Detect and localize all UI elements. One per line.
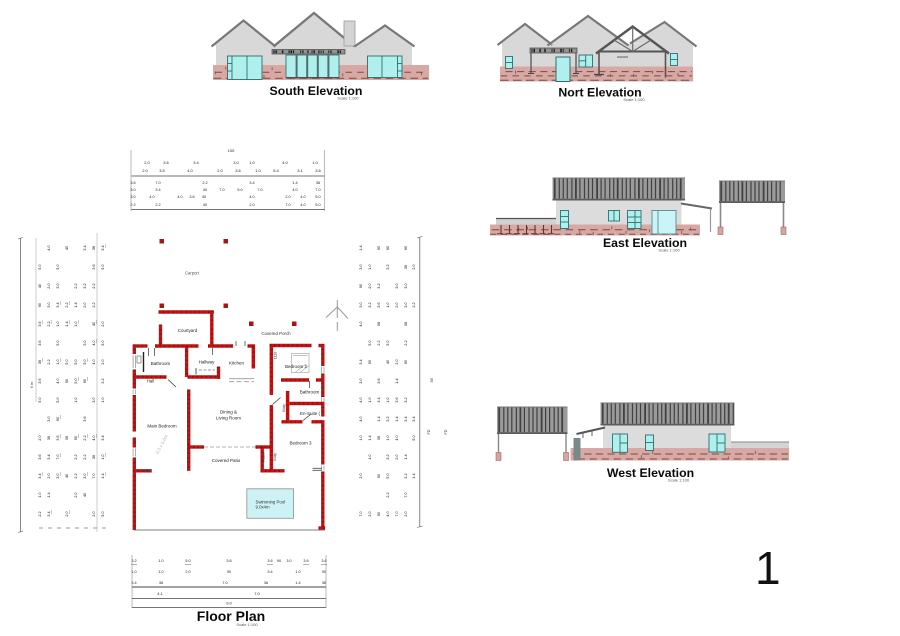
svg-text:2.0: 2.0 — [65, 511, 69, 516]
svg-text:1.4: 1.4 — [47, 492, 51, 497]
svg-text:3.4: 3.4 — [101, 245, 105, 250]
svg-text:2.0: 2.0 — [368, 283, 372, 288]
svg-text:3.2: 3.2 — [386, 264, 390, 269]
svg-text:5.4: 5.4 — [273, 168, 279, 173]
svg-text:3.6: 3.6 — [38, 321, 42, 326]
svg-text:Scale 1:100: Scale 1:100 — [623, 97, 645, 102]
svg-text:4.0: 4.0 — [187, 168, 193, 173]
svg-text:4.0: 4.0 — [292, 188, 297, 192]
svg-text:4.0: 4.0 — [249, 195, 254, 199]
svg-text:3.5: 3.5 — [159, 168, 165, 173]
svg-text:5.0: 5.0 — [65, 359, 69, 364]
svg-text:1.0: 1.0 — [368, 397, 372, 402]
svg-text:7.0: 7.0 — [404, 492, 408, 497]
svg-text:1.4: 1.4 — [395, 416, 399, 421]
svg-text:5.0: 5.0 — [38, 264, 42, 269]
svg-text:Covered Porch: Covered Porch — [261, 331, 291, 336]
svg-text:40: 40 — [92, 322, 96, 326]
svg-text:5.0: 5.0 — [56, 264, 60, 269]
svg-text:2.2: 2.2 — [202, 181, 207, 185]
svg-text:3.6: 3.6 — [38, 340, 42, 345]
svg-text:40: 40 — [203, 203, 207, 207]
svg-text:1.0: 1.0 — [56, 359, 60, 364]
svg-text:1.0: 1.0 — [295, 570, 300, 574]
svg-text:2.0: 2.0 — [217, 168, 223, 173]
svg-text:1.0: 1.0 — [368, 264, 372, 269]
svg-text:4.1: 4.1 — [157, 591, 163, 596]
svg-text:4.0: 4.0 — [56, 378, 60, 383]
svg-text:4.0: 4.0 — [92, 340, 96, 345]
svg-text:9.0x4m: 9.0x4m — [256, 505, 271, 510]
svg-text:1.4: 1.4 — [412, 473, 416, 478]
svg-text:2.0: 2.0 — [395, 302, 399, 307]
svg-text:2.0: 2.0 — [285, 195, 290, 199]
svg-text:1.0: 1.0 — [386, 397, 390, 402]
svg-text:2.2: 2.2 — [130, 203, 135, 207]
svg-text:3.0: 3.0 — [404, 283, 408, 288]
svg-text:2.2: 2.2 — [65, 302, 69, 307]
svg-text:3.4: 3.4 — [155, 188, 160, 192]
svg-text:3.0: 3.0 — [47, 302, 51, 307]
svg-text:1.0: 1.0 — [101, 454, 105, 459]
svg-text:90: 90 — [359, 284, 363, 288]
svg-text:2.2: 2.2 — [92, 283, 96, 288]
svg-text:36: 36 — [92, 455, 96, 459]
svg-text:3.4: 3.4 — [267, 570, 272, 574]
svg-text:3.4: 3.4 — [359, 359, 363, 364]
svg-text:9 m: 9 m — [29, 381, 34, 388]
svg-text:3.0: 3.0 — [130, 188, 135, 192]
svg-text:3.6: 3.6 — [377, 378, 381, 383]
svg-text:5.0: 5.0 — [56, 340, 60, 345]
svg-text:1.4: 1.4 — [377, 416, 381, 421]
svg-text:2.2: 2.2 — [74, 283, 78, 288]
svg-text:Bidg: Bidg — [282, 404, 286, 411]
svg-text:Main Bedroom: Main Bedroom — [147, 424, 177, 429]
svg-text:40: 40 — [386, 360, 390, 364]
svg-text:Scale 1:100: Scale 1:100 — [668, 478, 690, 483]
svg-text:1.0: 1.0 — [38, 492, 42, 497]
svg-text:90: 90 — [404, 246, 408, 250]
svg-text:3.6: 3.6 — [226, 559, 231, 563]
svg-text:Courtyard: Courtyard — [178, 328, 198, 333]
svg-text:4.0: 4.0 — [282, 160, 288, 165]
svg-text:7.0: 7.0 — [222, 581, 227, 585]
svg-text:Bathroom: Bathroom — [151, 361, 171, 366]
svg-text:4.0: 4.0 — [359, 416, 363, 421]
svg-text:Hallway: Hallway — [199, 360, 216, 365]
svg-text:2.2: 2.2 — [47, 359, 51, 364]
svg-text:40: 40 — [202, 195, 206, 199]
svg-text:3.0: 3.0 — [395, 283, 399, 288]
svg-text:Scale 1:100: Scale 1:100 — [337, 96, 359, 101]
svg-text:3.1: 3.1 — [297, 168, 303, 173]
svg-text:3.6: 3.6 — [56, 435, 60, 440]
svg-text:3.6: 3.6 — [395, 397, 399, 402]
svg-text:3.0: 3.0 — [233, 160, 239, 165]
svg-text:3.4: 3.4 — [412, 416, 416, 421]
svg-text:4.0: 4.0 — [300, 203, 305, 207]
svg-text:36: 36 — [377, 322, 381, 326]
svg-text:3.6: 3.6 — [38, 378, 42, 383]
svg-text:7.0: 7.0 — [257, 188, 262, 192]
svg-text:3.2: 3.2 — [404, 397, 408, 402]
svg-text:1.4: 1.4 — [292, 181, 297, 185]
svg-text:90: 90 — [377, 474, 381, 478]
svg-text:5.0: 5.0 — [185, 559, 190, 563]
svg-text:5.0: 5.0 — [56, 397, 60, 402]
svg-text:90: 90 — [83, 379, 87, 383]
svg-text:40: 40 — [38, 284, 42, 288]
svg-text:4.0: 4.0 — [359, 321, 363, 326]
svg-text:2.2: 2.2 — [74, 473, 78, 478]
svg-text:1110: 1110 — [273, 352, 277, 359]
svg-text:5.0: 5.0 — [386, 473, 390, 478]
svg-text:2.0: 2.0 — [74, 492, 78, 497]
svg-text:1.4: 1.4 — [65, 321, 69, 326]
svg-text:Hall: Hall — [147, 379, 154, 384]
svg-text:En-Suite (: En-Suite ( — [300, 411, 321, 416]
svg-text:90: 90 — [404, 360, 408, 364]
svg-text:2.2: 2.2 — [74, 454, 78, 459]
svg-text:2.0: 2.0 — [404, 511, 408, 516]
svg-text:1.0: 1.0 — [158, 559, 163, 563]
svg-text:3.4: 3.4 — [83, 245, 87, 250]
svg-text:7.0: 7.0 — [155, 181, 160, 185]
svg-text:5.0: 5.0 — [101, 264, 105, 269]
svg-text:5.0: 5.0 — [412, 435, 416, 440]
svg-text:2.0: 2.0 — [101, 359, 105, 364]
svg-text:Living Room: Living Room — [216, 416, 241, 421]
svg-text:3.6: 3.6 — [38, 454, 42, 459]
svg-text:40: 40 — [83, 493, 87, 497]
svg-text:2.2: 2.2 — [47, 321, 51, 326]
svg-text:3.0: 3.0 — [83, 340, 87, 345]
svg-text:3.0: 3.0 — [83, 473, 87, 478]
svg-text:3.2: 3.2 — [404, 473, 408, 478]
svg-text:36: 36 — [92, 246, 96, 250]
svg-text:2.2: 2.2 — [83, 435, 87, 440]
svg-text:3.6: 3.6 — [83, 416, 87, 421]
svg-text:3.6: 3.6 — [303, 559, 308, 563]
svg-text:2.0: 2.0 — [412, 264, 416, 269]
svg-text:3.6: 3.6 — [189, 195, 194, 199]
svg-text:1.0: 1.0 — [74, 321, 78, 326]
svg-text:FD: FD — [427, 429, 431, 434]
svg-text:7.0: 7.0 — [92, 473, 96, 478]
svg-text:40: 40 — [65, 474, 69, 478]
svg-text:90: 90 — [377, 512, 381, 516]
svg-text:Dining &: Dining & — [220, 410, 237, 415]
svg-text:Scale 1:100: Scale 1:100 — [658, 248, 680, 253]
svg-text:2.2: 2.2 — [92, 302, 96, 307]
svg-text:36: 36 — [322, 581, 326, 585]
svg-text:1.0: 1.0 — [101, 397, 105, 402]
svg-text:36: 36 — [404, 265, 408, 269]
svg-text:5.0: 5.0 — [315, 195, 320, 199]
svg-text:2.0: 2.0 — [83, 302, 87, 307]
svg-text:3.0: 3.0 — [47, 416, 51, 421]
svg-text:2.2: 2.2 — [377, 340, 381, 345]
svg-text:1.0: 1.0 — [312, 160, 318, 165]
svg-text:3.2: 3.2 — [386, 416, 390, 421]
svg-text:Bedroom 2: Bedroom 2 — [285, 364, 308, 369]
svg-text:36: 36 — [316, 181, 320, 185]
svg-text:3.6: 3.6 — [163, 160, 169, 165]
svg-text:3.4: 3.4 — [47, 511, 51, 516]
svg-text:90: 90 — [377, 246, 381, 250]
svg-text:3.4: 3.4 — [404, 416, 408, 421]
svg-text:4.0: 4.0 — [47, 245, 51, 250]
svg-text:3.2: 3.2 — [368, 302, 372, 307]
svg-text:2.0: 2.0 — [142, 168, 148, 173]
svg-text:2.0: 2.0 — [101, 321, 105, 326]
svg-text:FD: FD — [444, 429, 448, 434]
svg-text:3.6: 3.6 — [92, 264, 96, 269]
svg-text:2.2: 2.2 — [386, 492, 390, 497]
svg-text:4.0: 4.0 — [359, 397, 363, 402]
svg-text:4.0: 4.0 — [149, 195, 154, 199]
svg-text:2.2: 2.2 — [83, 454, 87, 459]
svg-text:2.2: 2.2 — [155, 203, 160, 207]
svg-text:3.0: 3.0 — [359, 264, 363, 269]
svg-text:1.0: 1.0 — [255, 168, 261, 173]
svg-text:90: 90 — [227, 570, 231, 574]
svg-text:Bidg: Bidg — [273, 453, 277, 460]
svg-text:BE: BE — [430, 377, 434, 382]
svg-text:5.0: 5.0 — [368, 340, 372, 345]
svg-text:3.6: 3.6 — [130, 181, 135, 185]
svg-text:5.0: 5.0 — [101, 511, 105, 516]
svg-text:5.0: 5.0 — [38, 397, 42, 402]
svg-text:2.0: 2.0 — [395, 359, 399, 364]
svg-text:4.0: 4.0 — [300, 195, 305, 199]
svg-text:90: 90 — [386, 246, 390, 250]
svg-text:7.0: 7.0 — [56, 454, 60, 459]
svg-text:3.0: 3.0 — [92, 397, 96, 402]
svg-text:90: 90 — [368, 360, 372, 364]
svg-text:90: 90 — [65, 379, 69, 383]
svg-text:90: 90 — [277, 559, 281, 563]
svg-text:Room: Room — [262, 452, 266, 462]
svg-text:3.0: 3.0 — [359, 302, 363, 307]
svg-text:7.0: 7.0 — [219, 188, 224, 192]
svg-text:3.0: 3.0 — [56, 473, 60, 478]
svg-text:2.0: 2.0 — [47, 473, 51, 478]
svg-text:2.0: 2.0 — [249, 203, 254, 207]
svg-text:Carport: Carport — [185, 271, 200, 276]
svg-text:3.4: 3.4 — [56, 302, 60, 307]
svg-text:3.4: 3.4 — [47, 454, 51, 459]
svg-text:3.0: 3.0 — [286, 559, 291, 563]
svg-text:4.0: 4.0 — [92, 359, 96, 364]
svg-text:3.0: 3.0 — [130, 195, 135, 199]
svg-text:4.0: 4.0 — [386, 511, 390, 516]
svg-text:1: 1 — [755, 542, 781, 594]
svg-text:2.2: 2.2 — [412, 302, 416, 307]
svg-text:Kitchen: Kitchen — [229, 361, 245, 366]
svg-text:90: 90 — [38, 303, 42, 307]
svg-text:3.6: 3.6 — [235, 168, 241, 173]
svg-text:1.4: 1.4 — [368, 435, 372, 440]
svg-text:4.0: 4.0 — [395, 435, 399, 440]
svg-text:6.0 x 5.0m: 6.0 x 5.0m — [155, 434, 169, 455]
svg-text:3.0: 3.0 — [359, 378, 363, 383]
svg-text:1.4: 1.4 — [359, 245, 363, 250]
svg-text:2.2: 2.2 — [38, 511, 42, 516]
svg-text:1.4: 1.4 — [101, 473, 105, 478]
svg-text:36: 36 — [65, 436, 69, 440]
svg-text:Scale 1:100: Scale 1:100 — [236, 622, 258, 627]
svg-text:2.0: 2.0 — [144, 160, 150, 165]
svg-text:36: 36 — [47, 436, 51, 440]
svg-text:1.0: 1.0 — [158, 570, 163, 574]
svg-text:7.0: 7.0 — [285, 203, 290, 207]
svg-text:2.0: 2.0 — [47, 283, 51, 288]
svg-text:1.0: 1.0 — [359, 435, 363, 440]
svg-text:Bathroom: Bathroom — [300, 390, 320, 395]
svg-text:1.4: 1.4 — [74, 302, 78, 307]
svg-text:5.0: 5.0 — [237, 188, 242, 192]
svg-text:5.0: 5.0 — [101, 340, 105, 345]
svg-text:36: 36 — [377, 436, 381, 440]
svg-text:36: 36 — [38, 360, 42, 364]
svg-text:3.4: 3.4 — [38, 473, 42, 478]
svg-text:100: 100 — [228, 148, 235, 153]
svg-text:3.6: 3.6 — [377, 302, 381, 307]
svg-text:40: 40 — [203, 188, 207, 192]
svg-text:36: 36 — [159, 581, 163, 585]
svg-text:3.2: 3.2 — [83, 283, 87, 288]
svg-text:5.0: 5.0 — [315, 203, 320, 207]
svg-text:5.0: 5.0 — [83, 359, 87, 364]
svg-text:1.0: 1.0 — [368, 454, 372, 459]
svg-text:90: 90 — [74, 436, 78, 440]
svg-text:4.0: 4.0 — [177, 195, 182, 199]
svg-text:36: 36 — [264, 581, 268, 585]
svg-text:5.0: 5.0 — [74, 359, 78, 364]
svg-text:5.0: 5.0 — [74, 378, 78, 383]
svg-text:7.0: 7.0 — [395, 511, 399, 516]
svg-text:2.0: 2.0 — [185, 570, 190, 574]
svg-text:Bedroom 3: Bedroom 3 — [289, 441, 312, 446]
svg-text:1.4: 1.4 — [404, 454, 408, 459]
svg-text:2.0: 2.0 — [368, 511, 372, 516]
svg-text:2.0: 2.0 — [92, 511, 96, 516]
svg-text:9.0: 9.0 — [226, 601, 232, 606]
svg-text:3.4: 3.4 — [249, 181, 254, 185]
svg-text:1.0: 1.0 — [74, 397, 78, 402]
svg-text:1.4: 1.4 — [295, 581, 300, 585]
svg-text:3.6: 3.6 — [267, 559, 272, 563]
svg-text:7.0: 7.0 — [254, 591, 260, 596]
svg-text:3.6: 3.6 — [315, 168, 321, 173]
svg-text:3.0: 3.0 — [56, 283, 60, 288]
svg-text:Covered Patio: Covered Patio — [212, 458, 241, 463]
svg-text:2.2: 2.2 — [404, 340, 408, 345]
svg-text:40: 40 — [65, 246, 69, 250]
svg-text:2.0: 2.0 — [38, 435, 42, 440]
svg-text:36: 36 — [404, 322, 408, 326]
svg-text:1.0: 1.0 — [386, 435, 390, 440]
svg-text:1.0: 1.0 — [56, 321, 60, 326]
svg-text:7.0: 7.0 — [315, 188, 320, 192]
svg-text:3.4: 3.4 — [101, 435, 105, 440]
svg-text:1.0: 1.0 — [249, 160, 255, 165]
svg-text:4.0: 4.0 — [92, 435, 96, 440]
svg-text:2.0: 2.0 — [395, 454, 399, 459]
svg-text:2.0: 2.0 — [359, 473, 363, 478]
svg-text:3.4: 3.4 — [193, 160, 199, 165]
svg-text:3.2: 3.2 — [101, 378, 105, 383]
svg-text:1.4: 1.4 — [395, 378, 399, 383]
svg-text:90: 90 — [322, 570, 326, 574]
svg-text:1.0: 1.0 — [386, 302, 390, 307]
svg-text:3.4: 3.4 — [377, 397, 381, 402]
svg-text:3.2: 3.2 — [386, 454, 390, 459]
svg-text:3.2: 3.2 — [377, 283, 381, 288]
svg-text:90: 90 — [56, 417, 60, 421]
svg-text:7.0: 7.0 — [359, 511, 363, 516]
svg-text:3.0: 3.0 — [404, 302, 408, 307]
svg-text:5.0: 5.0 — [386, 340, 390, 345]
